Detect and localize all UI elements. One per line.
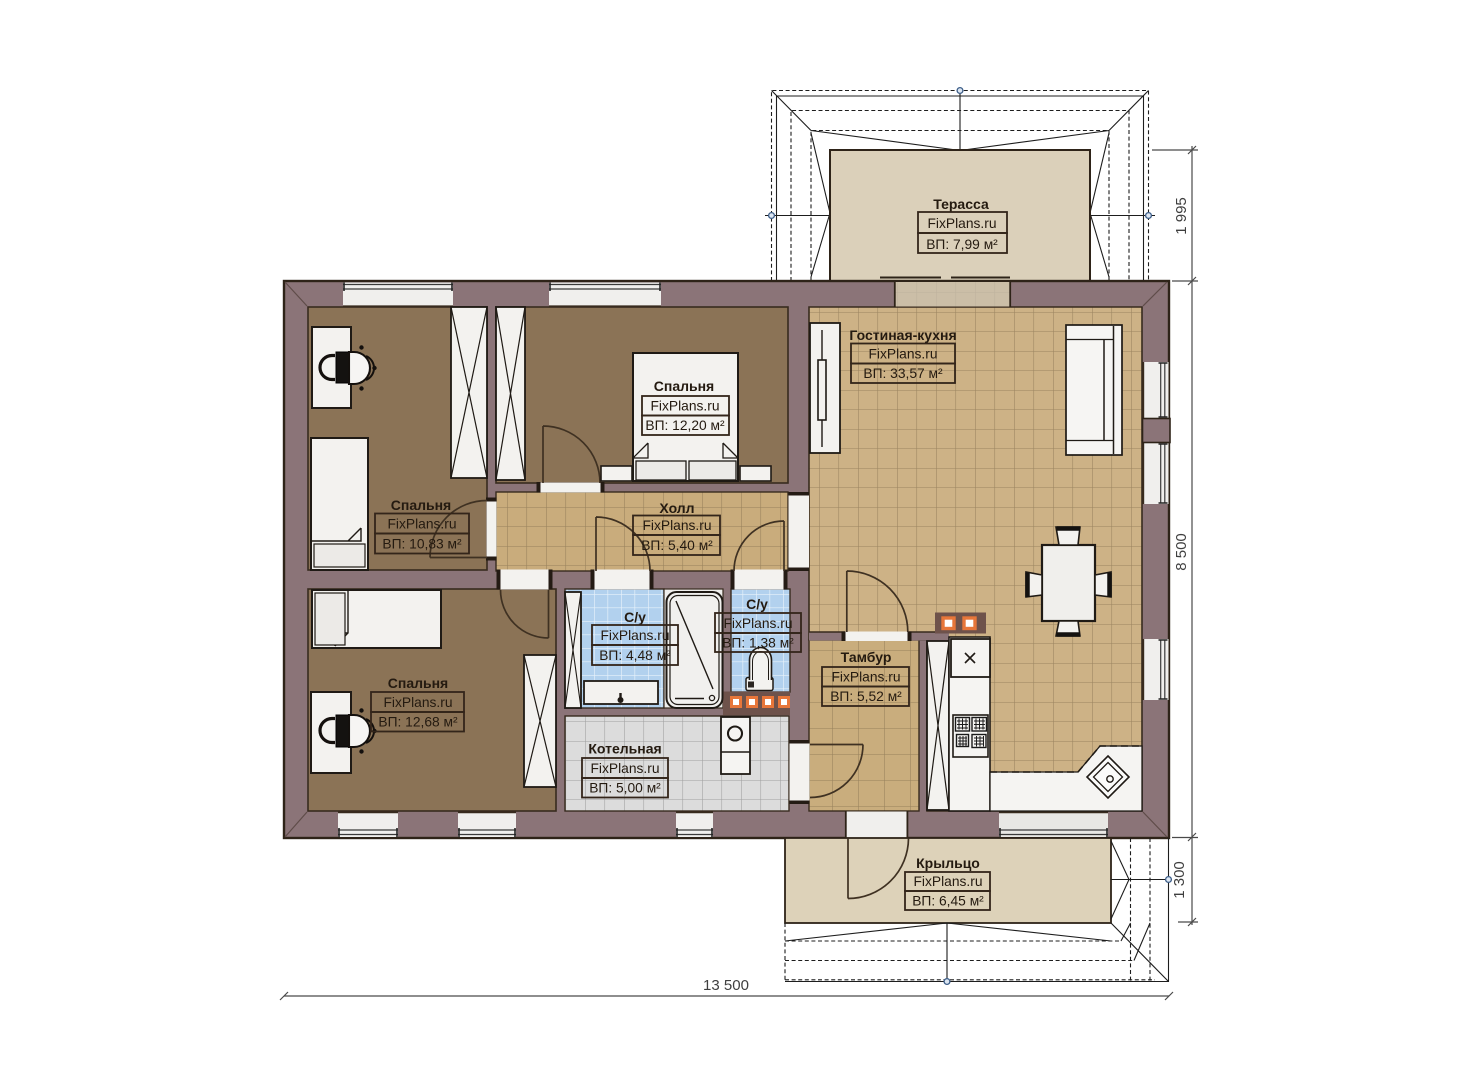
svg-text:Крыльцо: Крыльцо	[916, 855, 980, 871]
svg-text:Гостиная-кухня: Гостиная-кухня	[849, 327, 956, 343]
svg-text:Тамбур: Тамбур	[841, 649, 892, 665]
svg-text:13 500: 13 500	[703, 977, 749, 994]
svg-text:ВП: 12,20 м²: ВП: 12,20 м²	[645, 418, 725, 433]
svg-text:С/у: С/у	[624, 609, 646, 625]
svg-text:ВП: 5,00 м²: ВП: 5,00 м²	[589, 781, 661, 796]
svg-text:Спальня: Спальня	[654, 378, 714, 394]
svg-text:FixPlans.ru: FixPlans.ru	[600, 628, 669, 643]
svg-text:ВП: 33,57 м²: ВП: 33,57 м²	[863, 366, 943, 381]
svg-text:FixPlans.ru: FixPlans.ru	[831, 670, 900, 685]
svg-text:FixPlans.ru: FixPlans.ru	[590, 761, 659, 776]
svg-text:FixPlans.ru: FixPlans.ru	[642, 518, 711, 533]
svg-text:8 500: 8 500	[1173, 533, 1190, 571]
svg-text:ВП: 6,45 м²: ВП: 6,45 м²	[912, 894, 984, 909]
svg-text:FixPlans.ru: FixPlans.ru	[650, 399, 719, 414]
svg-text:1 995: 1 995	[1173, 197, 1190, 235]
svg-text:ВП: 12,68 м²: ВП: 12,68 м²	[378, 715, 458, 730]
svg-text:Терасса: Терасса	[933, 196, 989, 212]
svg-text:Спальня: Спальня	[391, 497, 451, 513]
svg-text:ВП: 10,83 м²: ВП: 10,83 м²	[382, 537, 462, 552]
svg-text:FixPlans.ru: FixPlans.ru	[868, 347, 937, 362]
svg-text:ВП: 1,38 м²: ВП: 1,38 м²	[722, 636, 794, 651]
svg-text:ВП: 7,99 м²: ВП: 7,99 м²	[926, 237, 998, 252]
svg-text:FixPlans.ru: FixPlans.ru	[383, 695, 452, 710]
svg-text:С/у: С/у	[746, 596, 768, 612]
svg-text:ВП: 5,40 м²: ВП: 5,40 м²	[641, 538, 713, 553]
svg-text:FixPlans.ru: FixPlans.ru	[387, 517, 456, 532]
svg-text:FixPlans.ru: FixPlans.ru	[913, 874, 982, 889]
svg-text:Спальня: Спальня	[388, 675, 448, 691]
svg-text:Котельная: Котельная	[588, 741, 661, 757]
svg-text:FixPlans.ru: FixPlans.ru	[723, 616, 792, 631]
svg-text:Холл: Холл	[659, 500, 694, 516]
svg-text:ВП: 4,48 м²: ВП: 4,48 м²	[599, 648, 671, 663]
svg-text:1 300: 1 300	[1171, 861, 1188, 899]
svg-text:ВП: 5,52 м²: ВП: 5,52 м²	[830, 689, 902, 704]
svg-text:FixPlans.ru: FixPlans.ru	[927, 216, 996, 231]
